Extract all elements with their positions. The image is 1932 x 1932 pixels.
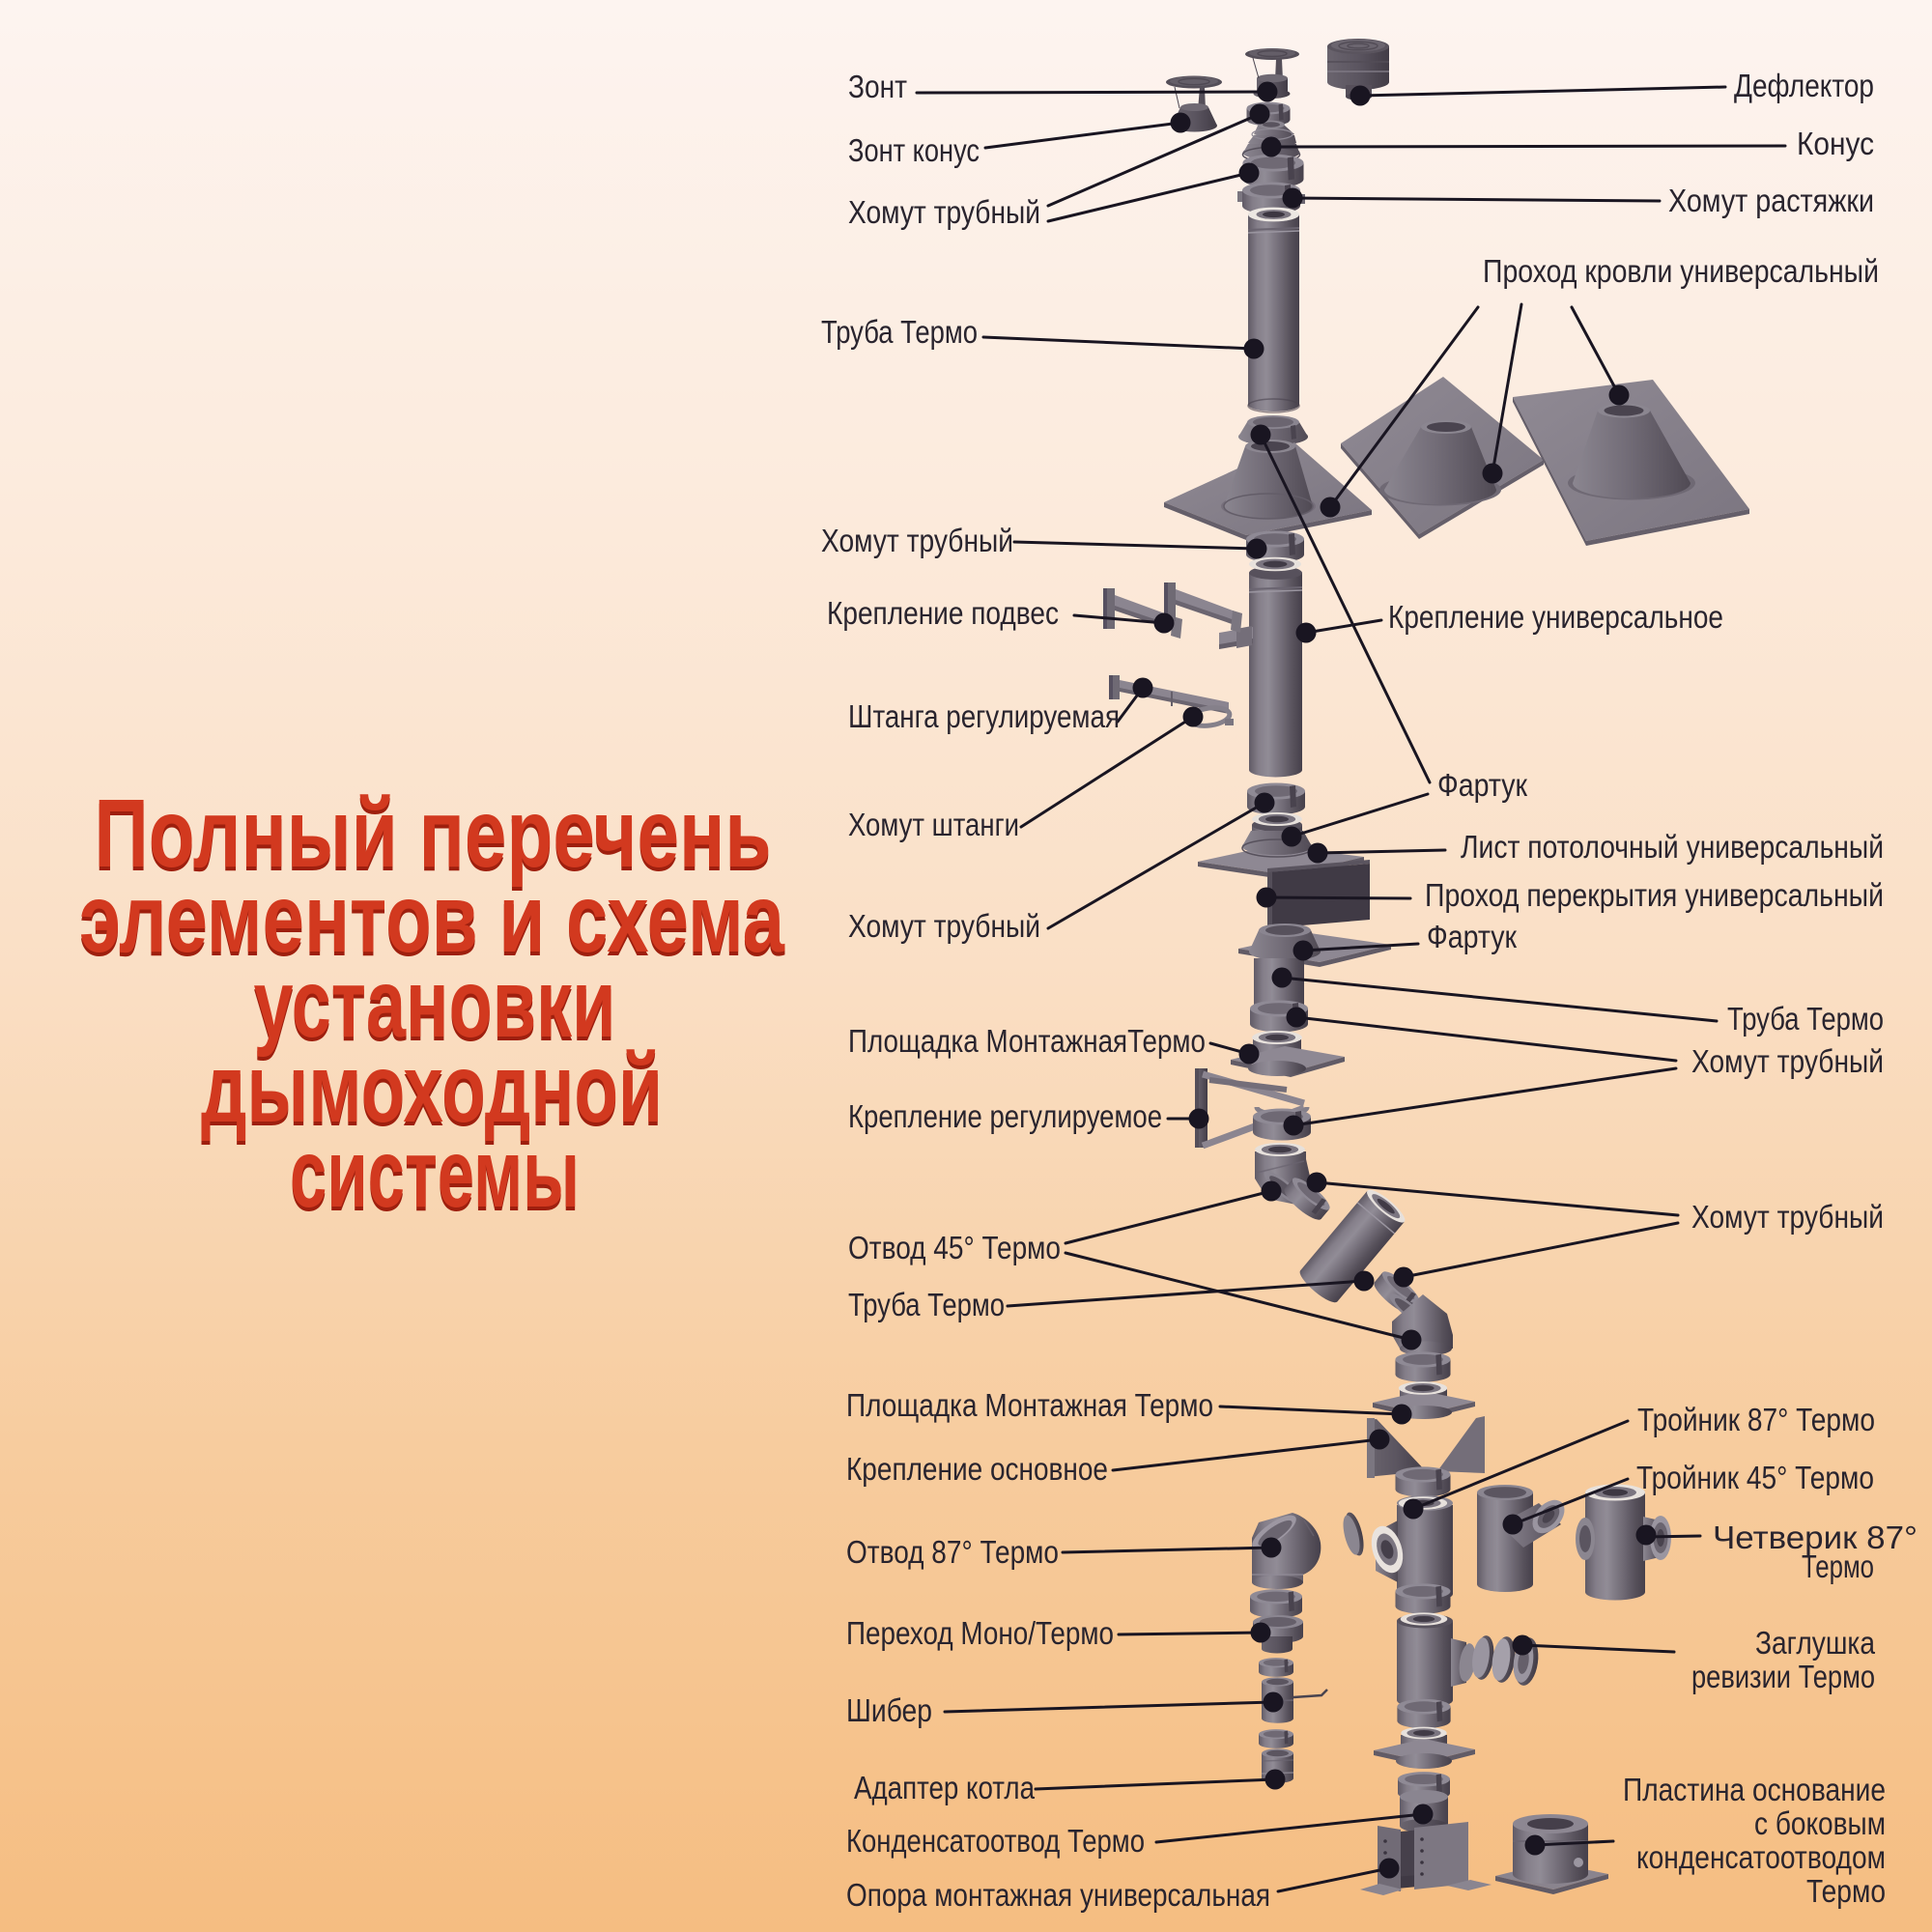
svg-text:Отвод 45° Термо: Отвод 45° Термо [848,1230,1061,1265]
svg-text:Крепление подвес: Крепление подвес [827,595,1059,631]
svg-text:Опора монтажная универсальная: Опора монтажная универсальная [846,1877,1270,1913]
svg-text:Хомут штанги: Хомут штанги [848,807,1019,842]
svg-text:Шибер: Шибер [846,1692,932,1728]
svg-text:Тройник 87° Термо: Тройник 87° Термо [1637,1402,1875,1437]
svg-text:Труба Термо: Труба Термо [848,1287,1005,1322]
svg-text:Труба Термо: Труба Термо [1727,1001,1884,1037]
svg-text:Фартук: Фартук [1437,767,1527,803]
svg-text:Штанга регулируемая: Штанга регулируемая [848,698,1120,734]
svg-text:конденсатоотводом: конденсатоотводом [1636,1839,1886,1875]
svg-text:Проход кровли универсальный: Проход кровли универсальный [1483,253,1879,289]
svg-text:Хомут растяжки: Хомут растяжки [1668,183,1874,218]
svg-text:Термо: Термо [1806,1873,1886,1909]
svg-text:Дефлектор: Дефлектор [1734,68,1874,103]
svg-text:Фартук: Фартук [1427,919,1517,954]
svg-text:Термо: Термо [1802,1548,1874,1584]
svg-text:Заглушка: Заглушка [1755,1625,1876,1661]
svg-text:Хомут трубный: Хомут трубный [848,194,1040,230]
svg-text:Пластина основание: Пластина основание [1623,1772,1886,1807]
svg-text:Хомут трубный: Хомут трубный [1691,1199,1884,1235]
svg-text:Отвод 87° Термо: Отвод 87° Термо [846,1534,1059,1570]
svg-text:Площадка МонтажнаяТермо: Площадка МонтажнаяТермо [848,1023,1206,1059]
svg-text:Лист потолочный универсальный: Лист потолочный универсальный [1461,829,1884,865]
svg-text:Конденсатоотвод Термо: Конденсатоотвод Термо [846,1823,1145,1859]
svg-text:Хомут трубный: Хомут трубный [848,908,1040,944]
svg-text:Крепление основное: Крепление основное [846,1451,1108,1487]
svg-text:Труба Термо: Труба Термо [821,314,978,350]
svg-text:системы: системы [290,1120,580,1228]
svg-text:Тройник 45° Термо: Тройник 45° Термо [1636,1460,1874,1495]
svg-text:Площадка Монтажная Термо: Площадка Монтажная Термо [846,1387,1213,1423]
svg-text:Проход перекрытия универсальны: Проход перекрытия универсальный [1425,877,1884,913]
svg-text:Переход Моно/Термо: Переход Моно/Термо [846,1615,1114,1651]
svg-text:Крепление универсальное: Крепление универсальное [1388,599,1723,635]
svg-text:Хомут трубный: Хомут трубный [821,523,1013,558]
svg-text:Зонт: Зонт [848,69,907,104]
svg-text:Зонт конус: Зонт конус [848,132,980,168]
svg-text:Хомут трубный: Хомут трубный [1691,1043,1884,1079]
svg-text:с боковым: с боковым [1754,1805,1886,1841]
svg-text:Адаптер котла: Адаптер котла [854,1770,1036,1805]
svg-text:Конус: Конус [1797,126,1874,161]
svg-text:ревизии Термо: ревизии Термо [1691,1659,1875,1694]
svg-text:Крепление регулируемое: Крепление регулируемое [848,1098,1162,1134]
